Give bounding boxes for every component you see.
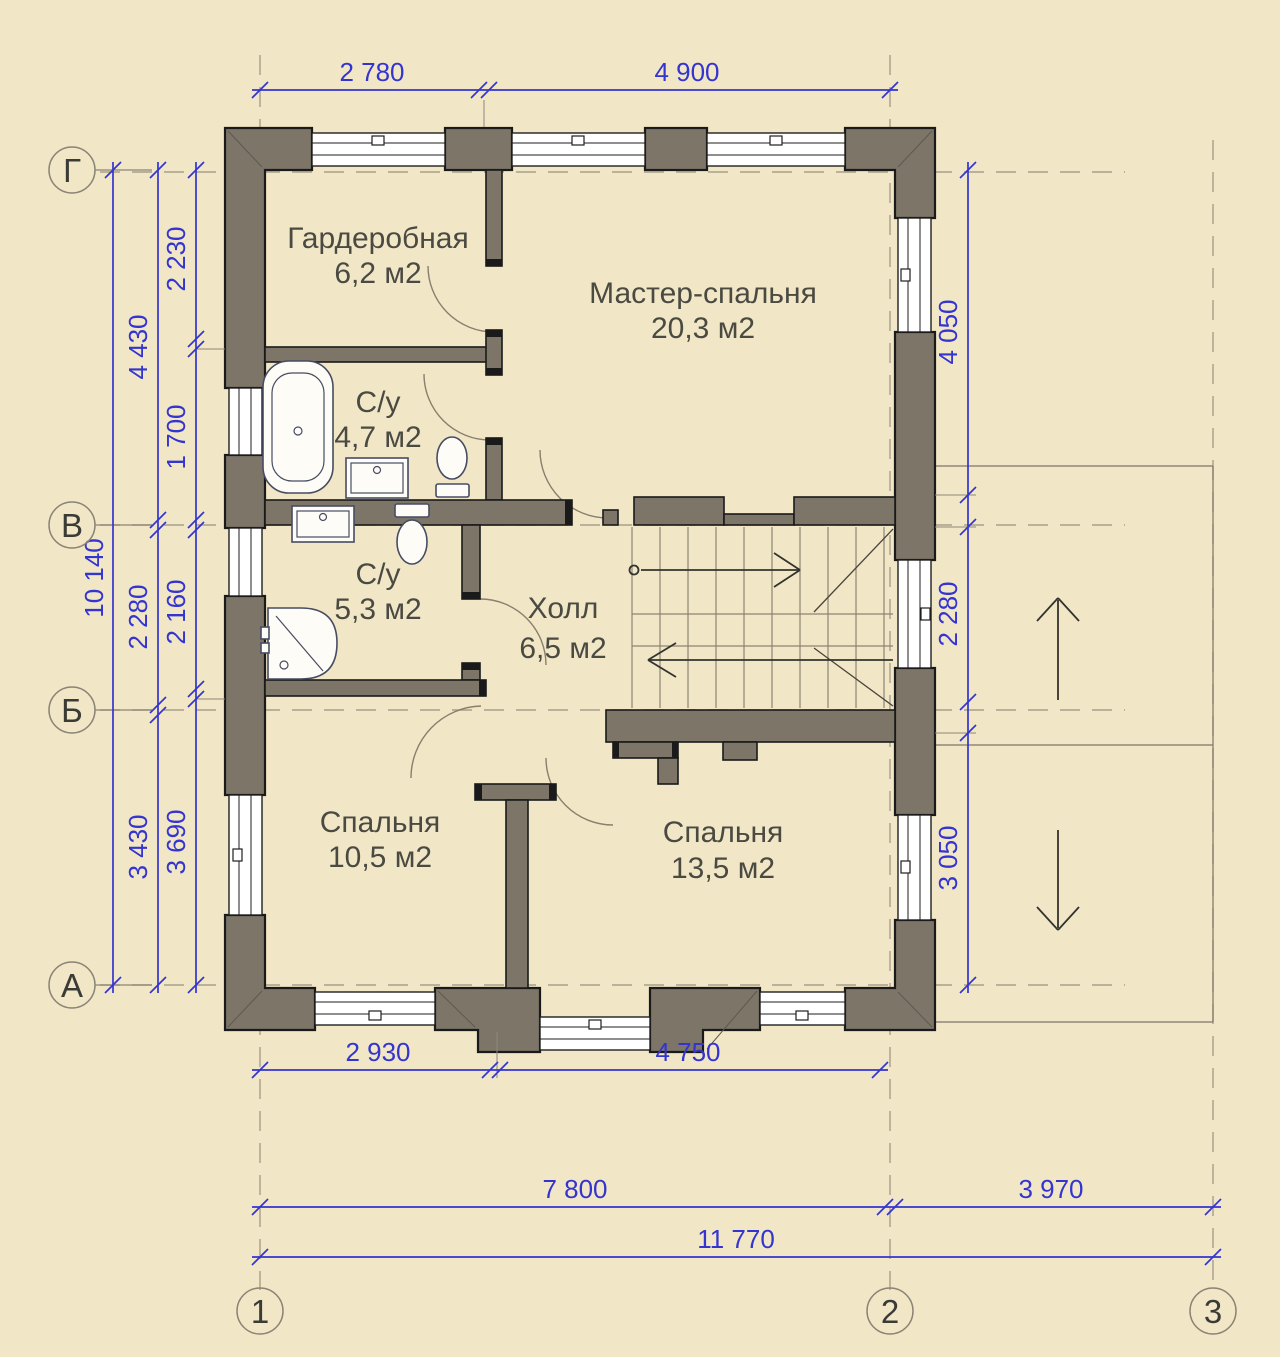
- window-bottom-2: [760, 992, 845, 1025]
- window-left-3: [229, 795, 262, 915]
- floor-plan-page: 2 780 4 900 10 140 4 430 2 280 3 430 2 2…: [0, 0, 1280, 1357]
- axis-row-label-3: Б: [61, 692, 83, 729]
- room-name-bedroom-1: Спальня: [320, 806, 441, 839]
- window-bottom-bay: [540, 1017, 650, 1050]
- axis-row-label-4: А: [61, 967, 83, 1004]
- window-left-2: [229, 528, 262, 596]
- sink-icon: [292, 506, 354, 542]
- dim-left-inner-2: 1 700: [161, 404, 191, 469]
- dim-left-overall: 10 140: [79, 538, 109, 618]
- axis-row-label-1: Г: [63, 152, 81, 189]
- window-right-2: [898, 560, 931, 668]
- dim-right-2: 2 280: [933, 581, 963, 646]
- toilet-icon: [436, 437, 469, 497]
- axis-col-label-1: 1: [251, 1293, 269, 1330]
- bathtub-icon: [263, 361, 333, 493]
- window-left-1: [229, 388, 262, 455]
- room-area-bedroom-2: 13,5 м2: [671, 852, 775, 885]
- window-top-3: [707, 133, 845, 166]
- window-right-1: [898, 218, 931, 332]
- window-bottom-1: [315, 992, 435, 1025]
- room-name-hall: Холл: [528, 592, 599, 625]
- dim-left-outer-1: 4 430: [123, 314, 153, 379]
- dim-top-right: 4 900: [654, 57, 719, 87]
- dim-bottom-inner-1: 2 930: [345, 1037, 410, 1067]
- axis-col-label-3: 3: [1204, 1293, 1222, 1330]
- plan-background: [0, 0, 1280, 1357]
- floor-plan-drawing: 2 780 4 900 10 140 4 430 2 280 3 430 2 2…: [0, 0, 1280, 1357]
- room-name-bedroom-2: Спальня: [663, 816, 784, 849]
- dim-left-inner-3: 2 160: [161, 579, 191, 644]
- dim-bottom-axes-1: 7 800: [542, 1174, 607, 1204]
- dim-bottom-inner-2: 4 750: [655, 1037, 720, 1067]
- room-area-wardrobe: 6,2 м2: [334, 257, 421, 290]
- room-name-bathroom-1: С/у: [356, 386, 401, 419]
- dim-right-3: 3 050: [933, 825, 963, 890]
- window-right-3: [898, 815, 931, 920]
- room-area-bedroom-1: 10,5 м2: [328, 841, 432, 874]
- dim-top-left: 2 780: [339, 57, 404, 87]
- dim-left-outer-3: 3 430: [123, 814, 153, 879]
- window-top-2: [512, 133, 645, 166]
- axis-col-label-2: 2: [881, 1293, 899, 1330]
- dim-left-inner-4: 3 690: [161, 809, 191, 874]
- axis-row-label-2: В: [61, 507, 83, 544]
- dim-right-1: 4 050: [933, 299, 963, 364]
- dim-bottom-axes-2: 3 970: [1018, 1174, 1083, 1204]
- shower-icon: [261, 608, 337, 679]
- room-area-bathroom-2: 5,3 м2: [334, 593, 421, 626]
- dim-left-outer-2: 2 280: [123, 584, 153, 649]
- dim-left-inner-1: 2 230: [161, 226, 191, 291]
- room-area-master-bedroom: 20,3 м2: [651, 312, 755, 345]
- window-top-1: [312, 133, 445, 166]
- room-area-bathroom-1: 4,7 м2: [334, 421, 421, 454]
- room-name-wardrobe: Гардеробная: [287, 222, 468, 255]
- room-name-bathroom-2: С/у: [356, 558, 401, 591]
- room-name-master-bedroom: Мастер-спальня: [589, 277, 817, 310]
- dim-bottom-overall: 11 770: [697, 1224, 775, 1254]
- vanity-sink-icon: [346, 458, 408, 498]
- room-area-hall: 6,5 м2: [519, 632, 606, 665]
- toilet-2-icon: [395, 504, 429, 564]
